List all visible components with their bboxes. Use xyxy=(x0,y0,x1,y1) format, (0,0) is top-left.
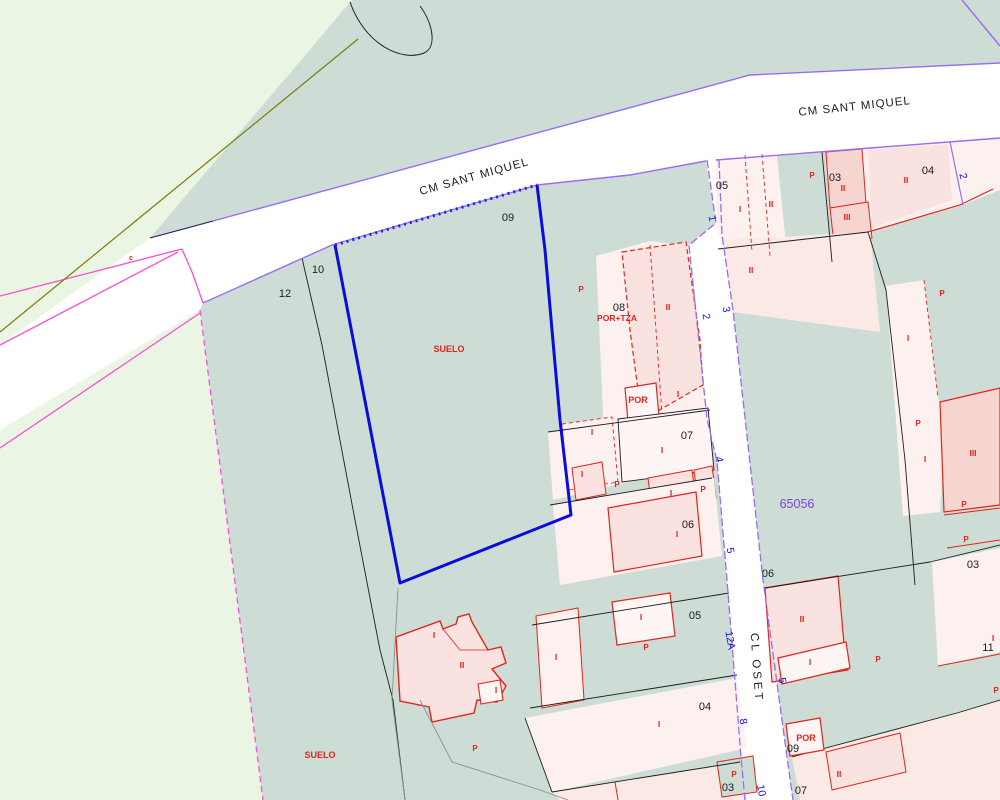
building-annotation-label: II xyxy=(666,302,671,312)
parcel-number-label: 06 xyxy=(762,568,774,580)
building-annotation-label: SUELO xyxy=(304,750,335,760)
building-annotation-label: I xyxy=(676,529,678,539)
building-annotation-label: I xyxy=(661,445,663,455)
street-number-label: 10 xyxy=(754,784,768,798)
building-annotation-label: I xyxy=(591,427,593,437)
parcel-number-label: 04 xyxy=(922,165,934,177)
building-footprint[interactable] xyxy=(612,593,675,645)
building-annotation-label: P xyxy=(614,480,620,489)
cadastral-reference-label: 65056 xyxy=(780,497,815,511)
building-annotation-label: P xyxy=(643,643,649,652)
parcel-number-label: 12 xyxy=(279,288,291,300)
building-annotation-label: P xyxy=(472,744,478,753)
building-annotation-label: P xyxy=(993,686,999,695)
building-annotation-label: II xyxy=(749,265,754,275)
building-annotation-label: I xyxy=(581,469,583,479)
parcel-number-label: 03 xyxy=(967,559,979,571)
building-annotation-label: c xyxy=(129,255,133,262)
building-annotation-label: I xyxy=(495,685,497,695)
building-annotation-label: I xyxy=(433,630,435,640)
building-annotation-label: P xyxy=(875,655,881,664)
parcel-number-label: 07 xyxy=(681,430,693,442)
cadastral-map: 1210090807060504030503040603110907123451… xyxy=(0,0,1000,800)
building-annotation-label: II xyxy=(841,183,846,193)
building-annotation-label: I xyxy=(739,204,741,214)
parcel-number-label: 10 xyxy=(312,264,324,276)
parcel-number-label: 07 xyxy=(795,785,807,797)
building-annotation-label: I xyxy=(907,333,909,343)
building-annotation-label: I xyxy=(992,633,994,643)
parcel-number-label: 09 xyxy=(787,743,799,755)
parcel-number-label: 06 xyxy=(682,519,694,531)
building-annotation-label: P xyxy=(961,500,967,509)
building-annotation-label: P xyxy=(578,285,584,294)
building-annotation-label: III xyxy=(969,448,976,458)
building-annotation-label: I xyxy=(658,719,660,729)
building-annotation-label: I xyxy=(809,657,811,667)
building-annotation-label: P xyxy=(915,419,921,428)
building-annotation-label: P xyxy=(809,171,815,180)
parcel-number-label: 11 xyxy=(982,642,993,654)
building-annotation-label: I xyxy=(555,652,557,662)
building-annotation-label: III xyxy=(843,212,850,222)
parcel-number-label: 09 xyxy=(502,212,514,224)
building-annotation-label: POR xyxy=(628,395,648,405)
cadastral-map-viewport: 1210090807060504030503040603110907123451… xyxy=(0,0,1000,800)
building-annotation-label: SUELO xyxy=(433,344,464,354)
building-annotation-label: II xyxy=(837,769,842,779)
building-annotation-label: I xyxy=(670,488,672,498)
parcel-number-label: 05 xyxy=(689,610,701,622)
building-footprint[interactable] xyxy=(478,680,503,704)
building-annotation-label: I xyxy=(677,389,679,399)
parcel-number-label: 05 xyxy=(716,180,728,192)
building-annotation-label: I xyxy=(924,454,926,464)
building-annotation-label: I xyxy=(640,612,642,622)
parcel-number-label: 04 xyxy=(699,701,711,713)
building-annotation-label: II xyxy=(800,614,805,624)
building-annotation-label: P xyxy=(731,770,737,779)
building-annotation-label: II xyxy=(460,660,465,670)
building-annotation-label: P xyxy=(963,535,969,544)
building-annotation-label: P xyxy=(700,485,706,494)
building-annotation-label: II xyxy=(769,199,774,209)
building-annotation-label: P xyxy=(939,289,945,298)
building-footprint[interactable] xyxy=(572,462,606,500)
parcel-number-label: 03 xyxy=(722,782,734,794)
parcel-number-label: 03 xyxy=(829,172,841,184)
building-annotation-label: POR xyxy=(796,733,816,743)
building-annotation-label: POR+TZA xyxy=(597,313,637,323)
building-annotation-label: II xyxy=(904,175,909,185)
